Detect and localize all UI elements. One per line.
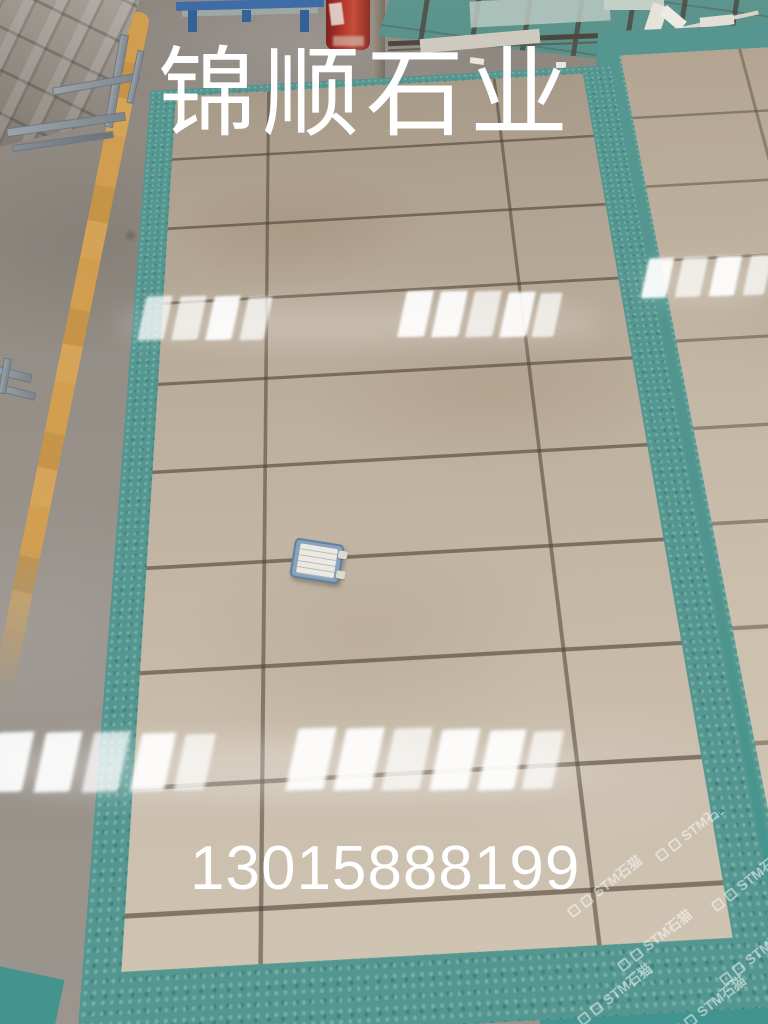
reflection-pane <box>0 731 35 792</box>
spec-card-clipboard <box>289 537 345 584</box>
stand-leg <box>188 10 197 32</box>
barrel-label <box>329 2 345 25</box>
stand-leg <box>300 10 309 32</box>
clipboard-clip <box>338 550 348 559</box>
phone-overlay-text: 13015888199 <box>190 838 580 900</box>
stand-leg <box>242 10 251 22</box>
tile-display-main <box>150 65 656 890</box>
blue-metal-stand <box>176 0 326 36</box>
title-overlay-text: 锦顺石业 <box>158 40 574 148</box>
clipboard-clip <box>336 570 346 579</box>
clipboard-paper <box>296 543 338 579</box>
stone-slab-rack <box>0 0 164 177</box>
metal-bracket <box>0 358 42 474</box>
warehouse-floor-photo: 锦顺石业 13015888199 STM石猫 STM石猫 STM石猫 STM石猫… <box>0 0 768 1024</box>
teal-floor-corner <box>0 965 65 1024</box>
reflection-pane <box>33 731 82 792</box>
